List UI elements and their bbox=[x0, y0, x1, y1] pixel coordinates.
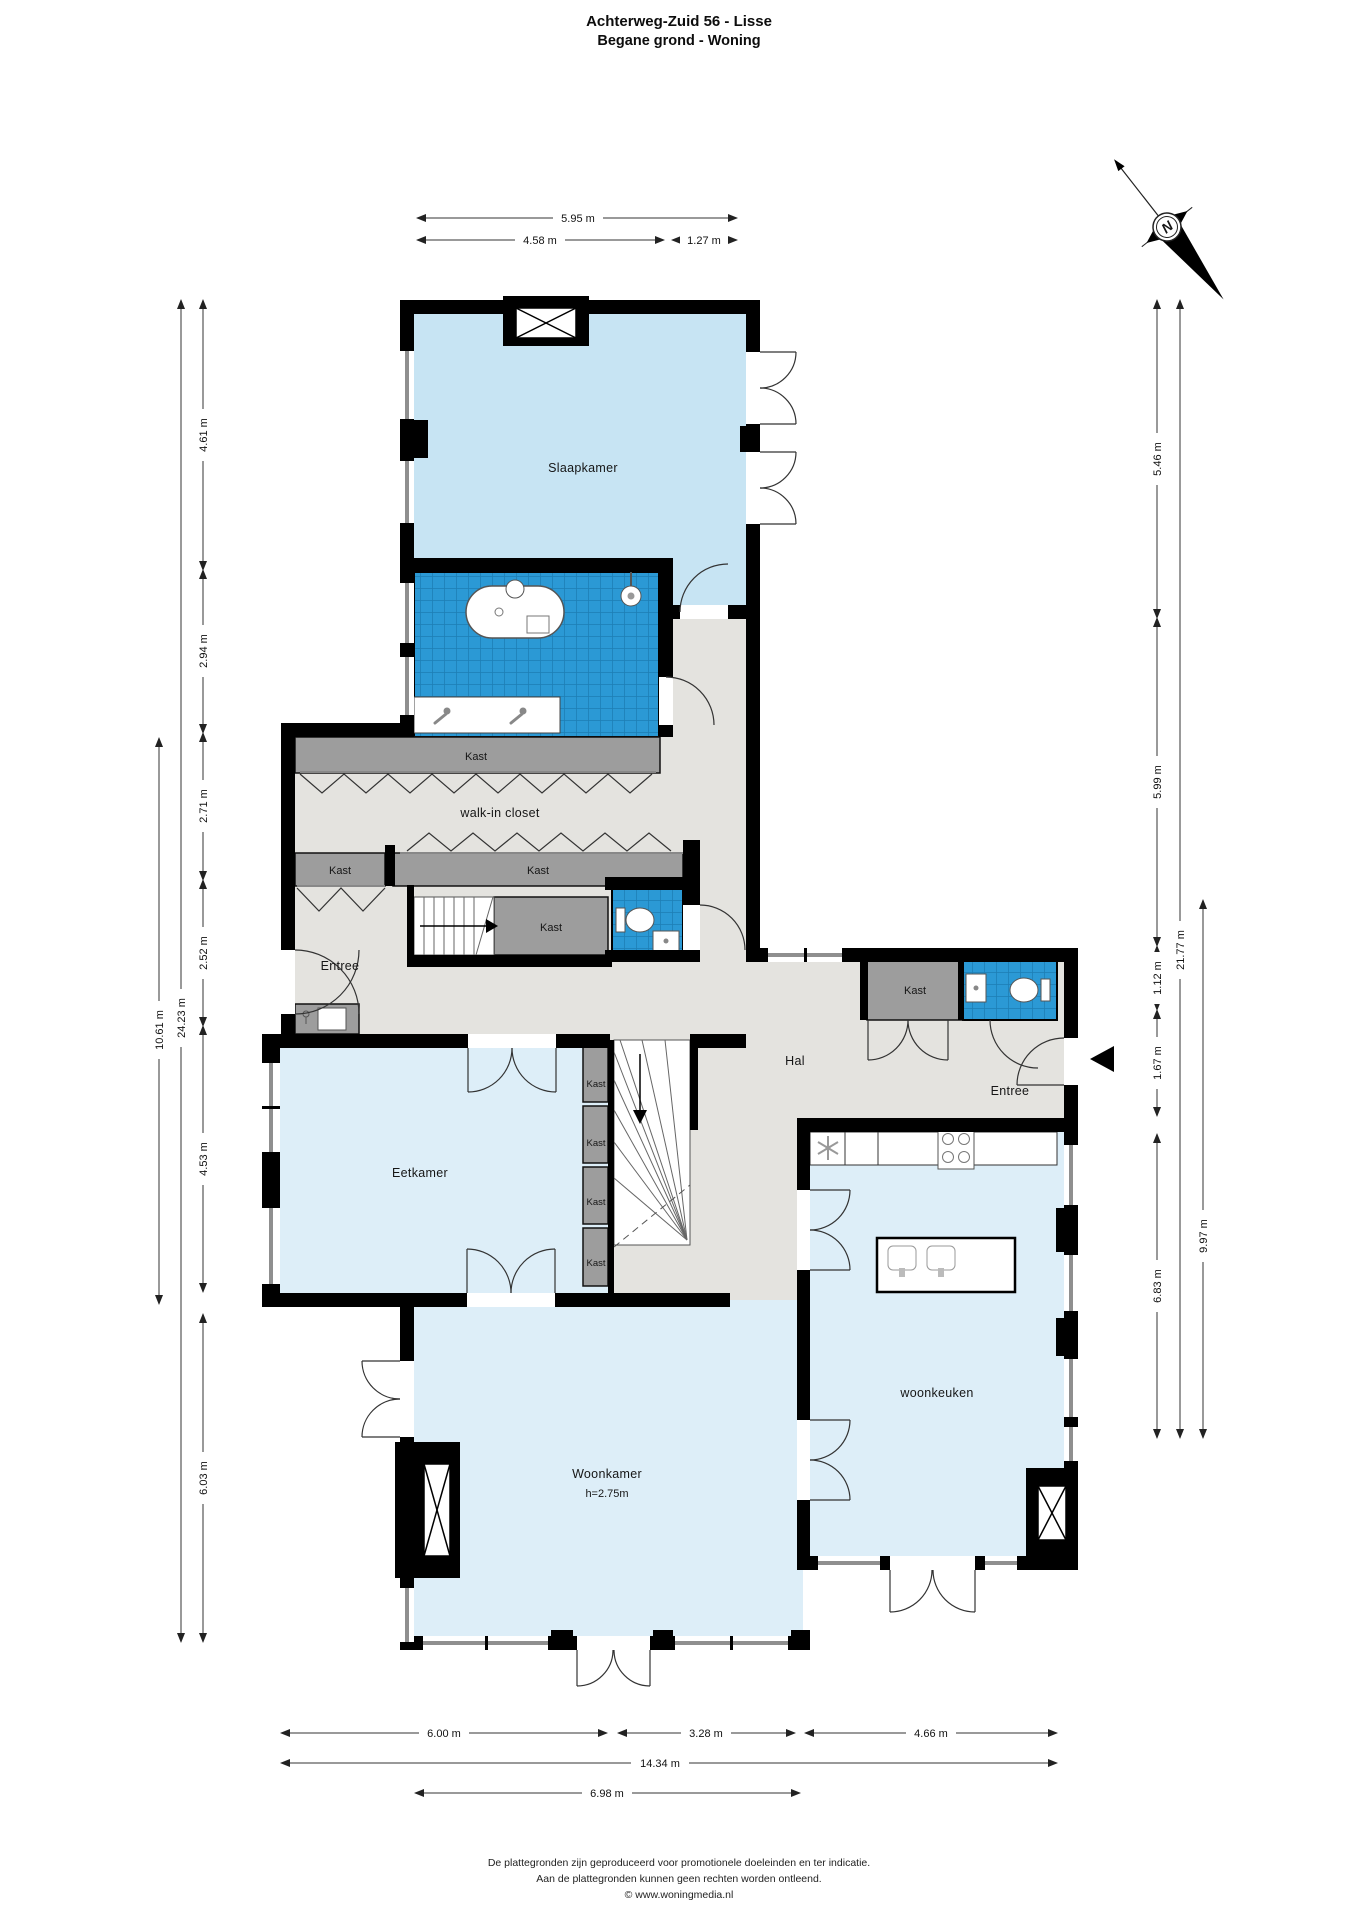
dim-label: 4.66 m bbox=[914, 1728, 948, 1740]
window bbox=[765, 948, 845, 962]
dim-label: 21.77 m bbox=[1175, 930, 1187, 970]
dim-label: 1.27 m bbox=[687, 235, 721, 247]
window bbox=[400, 580, 414, 646]
dim-label: 2.52 m bbox=[198, 936, 210, 970]
window bbox=[672, 1636, 791, 1650]
dim-left-outer: 10.61 m 24.23 m bbox=[151, 300, 189, 1642]
window bbox=[262, 1060, 280, 1155]
dim-label: 1.12 m bbox=[1152, 961, 1164, 995]
dim-label: 6.98 m bbox=[590, 1788, 624, 1800]
room-label-slaapkamer: Slaapkamer bbox=[548, 461, 618, 475]
dim-label: 1.67 m bbox=[1152, 1046, 1164, 1080]
kast-label: Kast bbox=[586, 1258, 605, 1269]
dim-top: 5.95 m 4.58 m 1.27 m bbox=[417, 210, 737, 247]
room-label-eetkamer: Eetkamer bbox=[392, 1166, 448, 1180]
window bbox=[1064, 1424, 1078, 1464]
room-label-entree-right: Entree bbox=[991, 1084, 1030, 1098]
kast-label: Kast bbox=[329, 865, 351, 877]
footer-disclaimer-2: Aan de plattegronden kunnen geen rechten… bbox=[0, 1872, 1358, 1888]
kast-label: Kast bbox=[586, 1138, 605, 1149]
room-label-woonkamer-height: h=2.75m bbox=[585, 1488, 628, 1500]
dim-label: 5.46 m bbox=[1152, 442, 1164, 476]
kast-label: Kast bbox=[586, 1079, 605, 1090]
double-door bbox=[890, 1570, 975, 1612]
floorplan-canvas: Slaapkamer Kast walk-in closet Kast Kast… bbox=[0, 0, 1358, 1920]
dim-bottom: 6.00 m 3.28 m 4.66 m 14.34 m 6.98 m bbox=[281, 1725, 1057, 1800]
dim-label: 14.34 m bbox=[640, 1758, 680, 1770]
room-label-walk-in-closet: walk-in closet bbox=[459, 806, 539, 820]
window bbox=[982, 1556, 1020, 1570]
dim-label: 10.61 m bbox=[154, 1010, 166, 1050]
page-footer: De plattegronden zijn geproduceerd voor … bbox=[0, 1856, 1358, 1903]
window bbox=[815, 1556, 883, 1570]
footer-copyright: © www.woningmedia.nl bbox=[0, 1888, 1358, 1904]
dim-label: 5.99 m bbox=[1152, 765, 1164, 799]
room-label-woonkeuken: woonkeuken bbox=[899, 1386, 973, 1400]
kitchen-island bbox=[877, 1238, 1015, 1292]
window bbox=[400, 458, 414, 526]
kast-box bbox=[583, 1167, 608, 1224]
dim-label: 2.94 m bbox=[198, 634, 210, 668]
dim-label: 9.97 m bbox=[1198, 1219, 1210, 1253]
dim-right-outer: 21.77 m 9.97 m bbox=[1172, 300, 1211, 1438]
entrance-arrow-icon bbox=[1090, 1046, 1114, 1072]
room-label-woonkamer: Woonkamer bbox=[572, 1467, 642, 1481]
dim-left: 4.61 m 2.94 m 2.71 m 2.52 m 4.53 m 6.03 … bbox=[195, 300, 211, 1642]
window bbox=[262, 1205, 280, 1287]
dim-label: 5.95 m bbox=[561, 213, 595, 225]
room-slaapkamer-floor bbox=[407, 307, 753, 572]
dim-label: 3.28 m bbox=[689, 1728, 723, 1740]
compass-rose: N bbox=[1089, 140, 1249, 320]
french-door bbox=[760, 352, 796, 424]
double-door bbox=[577, 1650, 650, 1686]
window bbox=[420, 1636, 551, 1650]
window bbox=[400, 654, 414, 718]
window bbox=[400, 348, 414, 422]
dim-label: 4.61 m bbox=[198, 418, 210, 452]
window bbox=[1064, 1142, 1078, 1208]
dim-label: 6.83 m bbox=[1152, 1269, 1164, 1303]
window bbox=[1064, 1252, 1078, 1314]
french-door bbox=[760, 452, 796, 524]
kast-label: Kast bbox=[527, 865, 549, 877]
kast-box bbox=[583, 1228, 608, 1286]
bathtub bbox=[466, 580, 564, 638]
stairs-straight bbox=[414, 897, 498, 955]
compass-needle-tip bbox=[1111, 157, 1125, 171]
fireplace-icon bbox=[424, 1464, 450, 1556]
cooktop bbox=[938, 1127, 974, 1169]
kast-label: Kast bbox=[540, 922, 562, 934]
kast-label: Kast bbox=[904, 985, 926, 997]
footer-disclaimer-1: De plattegronden zijn geproduceerd voor … bbox=[0, 1856, 1358, 1872]
floorplan-page: Achterweg-Zuid 56 - Lisse Begane grond -… bbox=[0, 0, 1358, 1920]
dim-right: 5.46 m 5.99 m 1.12 m 1.67 m 6.83 m bbox=[1149, 300, 1165, 1438]
window bbox=[400, 1585, 414, 1645]
stairs-winder bbox=[614, 1040, 690, 1247]
bathroom-vanity bbox=[414, 697, 560, 733]
french-door bbox=[362, 1361, 400, 1437]
window bbox=[1064, 1356, 1078, 1420]
slaapkamer-passage-floor bbox=[673, 558, 746, 608]
dim-label: 24.23 m bbox=[176, 998, 188, 1038]
kast-box bbox=[583, 1106, 608, 1163]
kast-label: Kast bbox=[586, 1197, 605, 1208]
dim-label: 4.53 m bbox=[198, 1142, 210, 1176]
room-label-hal: Hal bbox=[785, 1054, 805, 1068]
kast-box bbox=[583, 1045, 608, 1102]
kast-label: Kast bbox=[465, 751, 487, 763]
dim-label: 4.58 m bbox=[523, 235, 557, 247]
room-label-entree-left: Entree bbox=[321, 959, 360, 973]
dim-label: 6.03 m bbox=[198, 1461, 210, 1495]
dim-label: 6.00 m bbox=[427, 1728, 461, 1740]
flue-icon bbox=[1038, 1486, 1066, 1540]
kitchen-counter bbox=[810, 1132, 1057, 1165]
dim-label: 2.71 m bbox=[198, 789, 210, 823]
chimney-icon bbox=[516, 308, 576, 338]
